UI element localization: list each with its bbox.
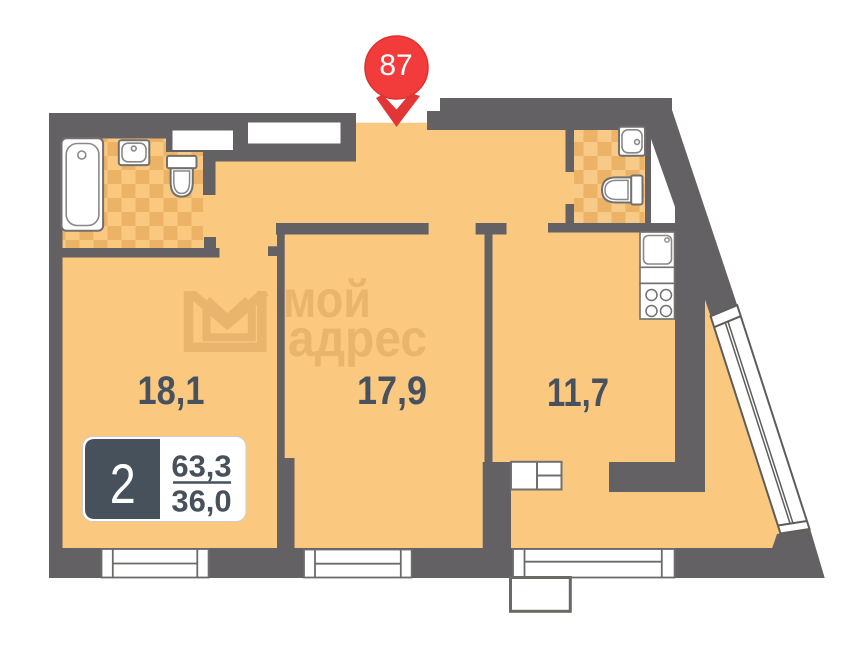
svg-text:63,3: 63,3 [171, 449, 231, 484]
svg-text:адрес: адрес [288, 310, 427, 368]
svg-text:11,7: 11,7 [547, 371, 609, 415]
svg-text:18,1: 18,1 [138, 369, 205, 413]
svg-text:17,9: 17,9 [357, 369, 427, 413]
svg-text:2: 2 [110, 452, 136, 515]
svg-text:36,0: 36,0 [171, 484, 231, 519]
svg-text:87: 87 [379, 49, 412, 82]
